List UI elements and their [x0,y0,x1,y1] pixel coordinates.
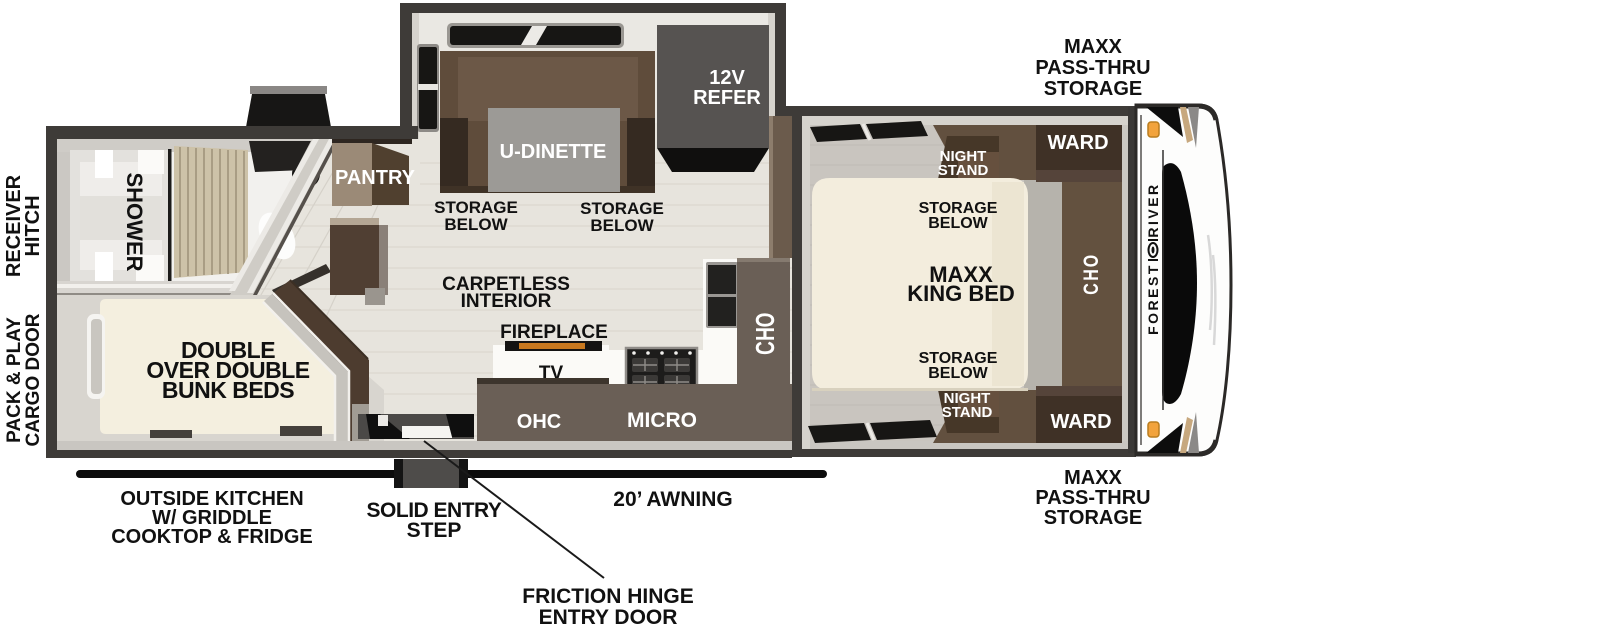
svg-text:MICRO: MICRO [627,409,697,432]
svg-text:PASS-THRU: PASS-THRU [1035,487,1150,509]
svg-text:WARD: WARD [1050,411,1111,433]
svg-text:STEP: STEP [407,519,462,542]
svg-text:BELOW: BELOW [928,365,988,382]
svg-text:FOREST: FOREST [1145,263,1161,335]
svg-text:BUNK BEDS: BUNK BEDS [162,377,294,403]
svg-text:INTERIOR: INTERIOR [461,291,552,312]
svg-text:MAXX: MAXX [1064,36,1122,58]
svg-text:PASS-THRU: PASS-THRU [1035,57,1150,79]
svg-text:BELOW: BELOW [928,215,988,232]
svg-text:PANTRY: PANTRY [335,167,416,189]
svg-text:PACK & PLAY: PACK & PLAY [4,317,25,443]
svg-text:WARD: WARD [1047,132,1108,154]
svg-text:O: O [751,313,779,328]
svg-text:FIREPLACE: FIREPLACE [500,322,608,343]
svg-text:KING BED: KING BED [907,281,1015,306]
svg-text:20’ AWNING: 20’ AWNING [613,488,732,511]
svg-text:ENTRY DOOR: ENTRY DOOR [539,606,678,626]
svg-text:STAND: STAND [942,404,993,421]
svg-text:STAND: STAND [938,162,989,179]
svg-text:MAXX: MAXX [1064,467,1122,489]
svg-text:C: C [751,341,779,355]
svg-text:RIVER: RIVER [1145,182,1161,237]
svg-text:REFER: REFER [693,87,761,109]
svg-text:CARGO DOOR: CARGO DOOR [23,313,44,446]
svg-text:H: H [751,327,779,341]
svg-text:BELOW: BELOW [590,216,654,235]
svg-text:HITCH: HITCH [22,195,44,256]
svg-text:H: H [1079,269,1103,281]
svg-text:C: C [1079,283,1103,295]
svg-text:OHC: OHC [517,411,561,433]
svg-text:O: O [1079,255,1103,267]
svg-text:STORAGE: STORAGE [1044,507,1143,529]
svg-text:SHOWER: SHOWER [122,173,147,272]
svg-text:COOKTOP & FRIDGE: COOKTOP & FRIDGE [111,526,313,548]
svg-text:12V: 12V [709,67,745,89]
svg-text:FRICTION HINGE: FRICTION HINGE [522,585,694,608]
svg-text:STORAGE: STORAGE [1044,78,1143,100]
svg-text:U-DINETTE: U-DINETTE [500,141,607,163]
svg-text:BELOW: BELOW [444,215,508,234]
